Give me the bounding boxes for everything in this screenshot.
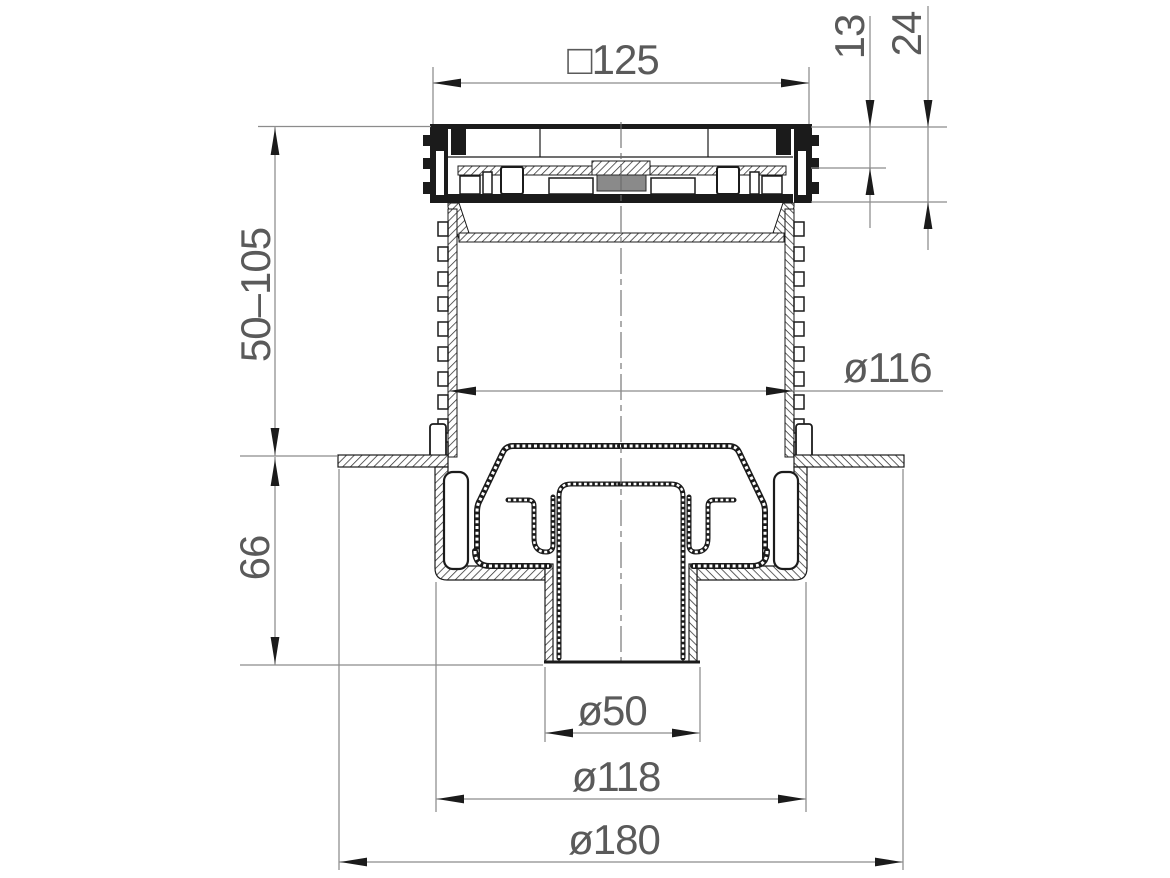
trap-collar: [508, 497, 553, 552]
frame-corner-post: [451, 129, 466, 155]
dimension-adjustment-range: 50–105: [232, 127, 431, 457]
outlet-pipe-wall: [545, 564, 553, 662]
body-socket: [430, 424, 446, 458]
grate-tab-left: [501, 167, 523, 194]
grate-slot: [460, 176, 480, 194]
dim-label-body-diameter: ø118: [572, 753, 661, 800]
dim-label-riser-pipe-diameter: ø116: [843, 344, 932, 391]
dimension-flange-diameter: ø180: [339, 469, 903, 870]
grate-slot: [750, 172, 759, 194]
dim-label-outlet-diameter: ø50: [577, 687, 646, 734]
dimension-body-height: 66: [231, 457, 543, 665]
flange: [338, 455, 448, 467]
drain-right-half: [620, 124, 904, 662]
funnel-floor: [475, 551, 549, 566]
telescopic-pipe-wall: [448, 209, 457, 457]
grate-slot: [762, 176, 782, 194]
frame-top-edge: [430, 124, 810, 129]
inner-ledge: [444, 472, 468, 569]
dim-label-flange-diameter: ø180: [568, 816, 660, 863]
frame-seat-band: [447, 194, 793, 203]
grate-recess: [651, 178, 695, 194]
frame-wall-channel: [436, 151, 444, 195]
riser-pipe: [559, 484, 622, 658]
dimension-grate-width: □125: [433, 36, 809, 124]
dimension-riser-pipe-diameter: ø116: [449, 344, 943, 395]
grate-slot: [483, 172, 492, 194]
dimension-outlet-diameter: ø50: [545, 667, 700, 742]
grate-assembly: [430, 124, 810, 242]
dim-label-grate-rim-height: 13: [826, 15, 873, 60]
dim-label-body-height: 66: [231, 536, 278, 581]
drain-left-half: [338, 124, 622, 662]
serration-teeth: [438, 222, 448, 456]
technical-drawing: □125 13 24 50–105 66 ø116 ø50: [0, 0, 1170, 878]
dim-label-frame-height: 24: [883, 11, 930, 56]
drawing-canvas: □125 13 24 50–105 66 ø116 ø50: [0, 0, 1170, 878]
dim-label-grate-width: □125: [567, 36, 658, 83]
grate-recess: [549, 178, 593, 194]
grate-tab-right: [717, 167, 739, 194]
dim-label-adjustment-range: 50–105: [232, 228, 279, 362]
